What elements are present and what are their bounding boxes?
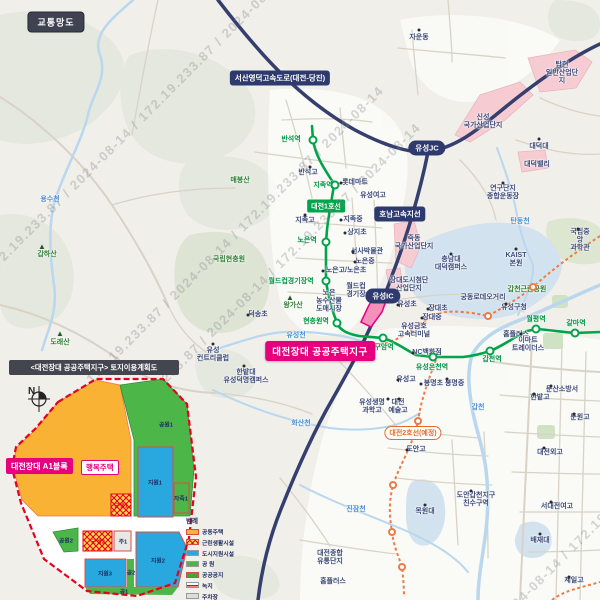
zone-label: 지원1 <box>148 478 162 487</box>
legend-swatch-gray <box>186 593 199 599</box>
legend-label: 도시지원시설 <box>202 549 234 558</box>
legend-row: 도시지원시설 <box>186 549 234 558</box>
traffic-network-map: <대전장대 공공주택지구> 토지이용계획도 N 대전장대 A1블록 행복주택 범… <box>0 0 600 600</box>
legend-label: 공 원 <box>202 559 214 568</box>
zone-label: 근생2 <box>91 537 105 546</box>
zone-label: 공원1 <box>159 420 173 429</box>
legend-title: 범례 <box>186 515 234 525</box>
legend-label: 근린생활시설 <box>202 538 234 547</box>
legend: 범례 공동주택근린생활시설도시지원시설공 원공공공지녹지주차장도 로구역계 <box>186 515 234 600</box>
zone-green1 <box>85 587 178 595</box>
legend-label: 주차장 <box>202 592 218 600</box>
happy-housing-tag: 행복주택 <box>81 460 119 475</box>
zone-label: 공1 <box>120 587 129 596</box>
legend-row: 공 원 <box>186 559 234 568</box>
inset-title: <대전장대 공공주택지구> 토지이용계획도 <box>9 360 179 375</box>
north-arrow: N <box>28 386 35 397</box>
legend-row: 공동주택 <box>186 527 234 536</box>
zone-label: 지원2 <box>151 556 165 565</box>
zone-label: 근생1 <box>114 501 128 510</box>
compass-icon <box>28 386 50 412</box>
legend-swatch-blue <box>186 550 199 556</box>
legend-label: 공공공지 <box>202 570 223 579</box>
legend-swatch-hatch <box>186 539 199 545</box>
legend-swatch-orange <box>186 529 199 535</box>
legend-swatch-stripe <box>186 582 199 588</box>
legend-row: 근린생활시설 <box>186 538 234 547</box>
legend-swatch-green <box>186 561 199 567</box>
inset-plan-svg <box>0 0 600 600</box>
zone-label: 자족1 <box>174 494 188 503</box>
legend-swatch-green2 <box>186 572 199 578</box>
a1-block-label: 대전장대 A1블록 <box>6 458 73 474</box>
zone-label: 공원2 <box>59 536 73 545</box>
zone-label: 주1 <box>119 537 128 546</box>
zone-label: 지원3 <box>98 569 112 578</box>
zone-label: 공2 <box>127 568 136 577</box>
legend-label: 녹지 <box>202 581 213 590</box>
legend-row: 주차장 <box>186 592 234 600</box>
legend-label: 공동주택 <box>202 527 223 536</box>
legend-row: 녹지 <box>186 581 234 590</box>
legend-row: 공공공지 <box>186 570 234 579</box>
